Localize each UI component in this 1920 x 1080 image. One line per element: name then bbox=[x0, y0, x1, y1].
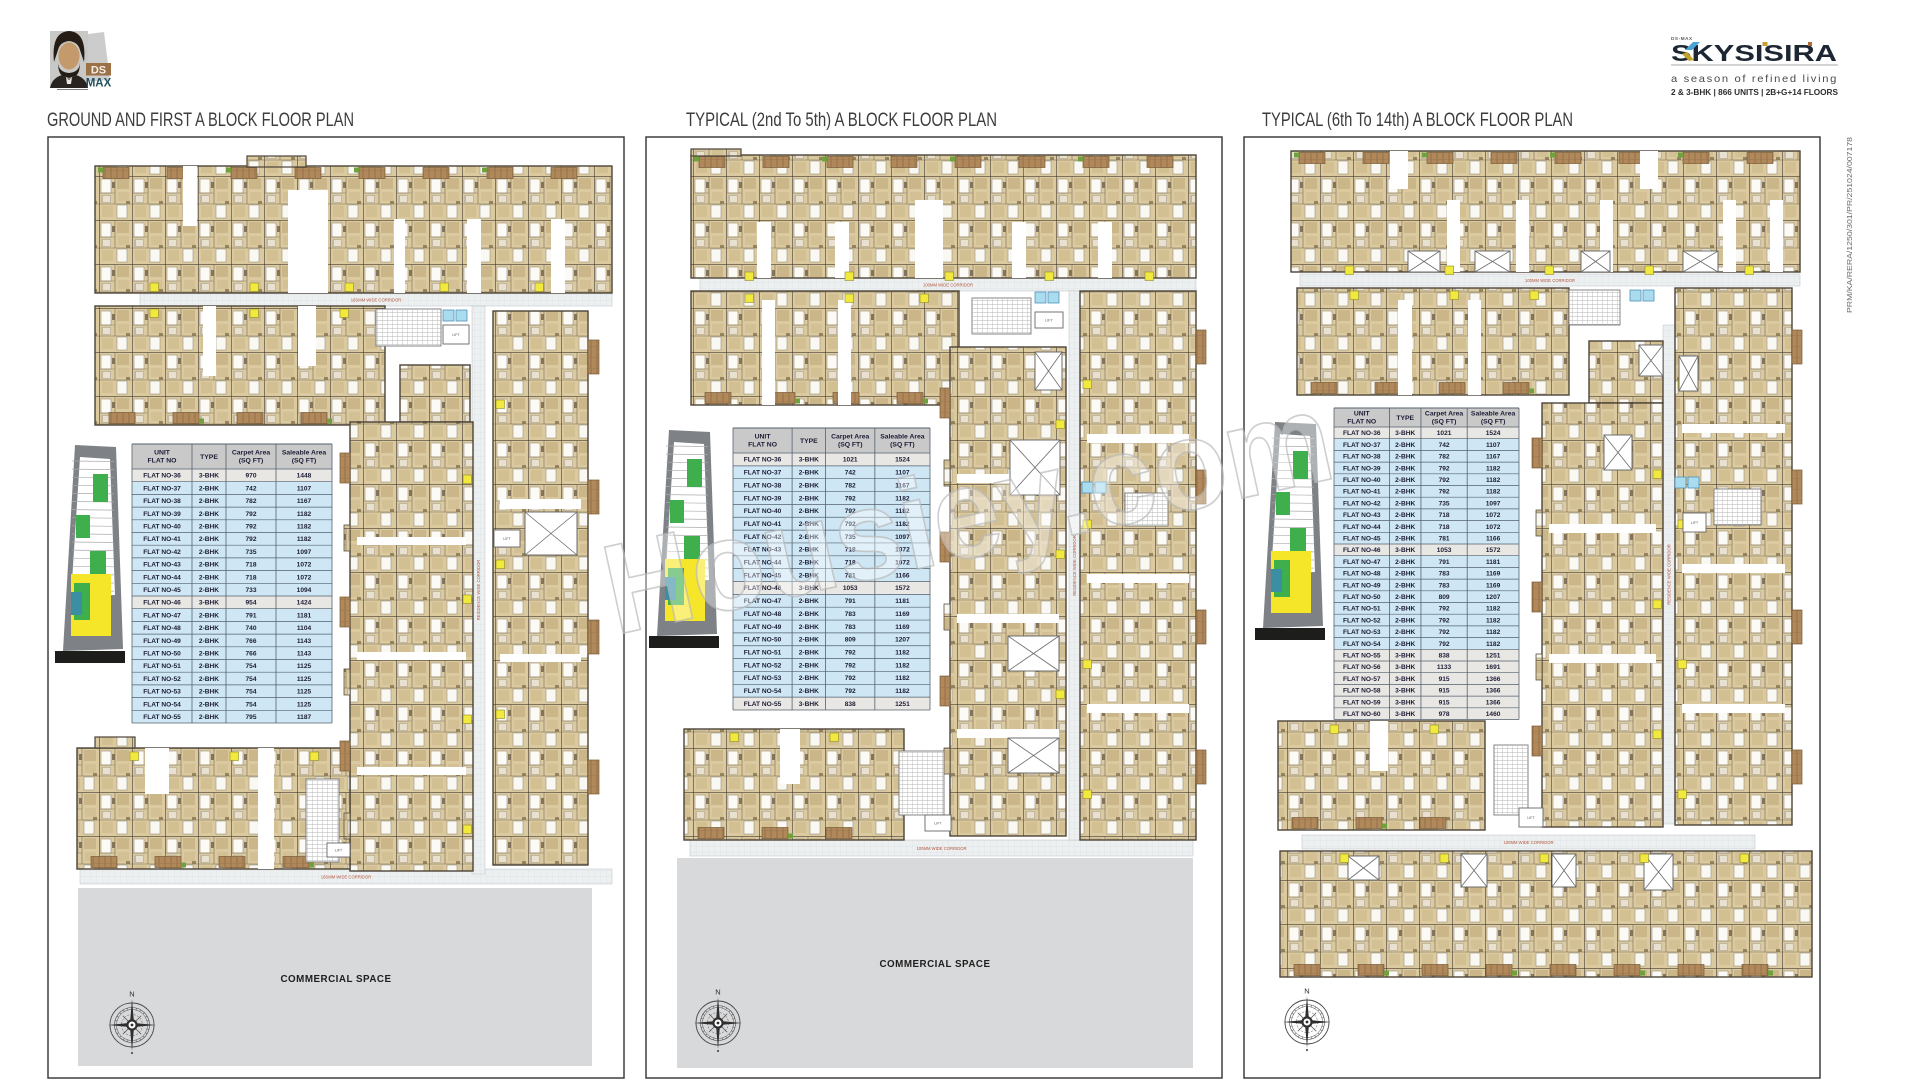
svg-text:2-BHK: 2-BHK bbox=[1395, 617, 1415, 624]
svg-text:FLAT NO-43: FLAT NO-43 bbox=[143, 562, 181, 569]
svg-text:2-BHK: 2-BHK bbox=[1395, 524, 1415, 531]
svg-text:1182: 1182 bbox=[1486, 489, 1501, 496]
svg-text:1182: 1182 bbox=[895, 675, 910, 682]
svg-text:UNIT: UNIT bbox=[1354, 411, 1371, 418]
svg-text:16SMM WIDE CORRIDOR: 16SMM WIDE CORRIDOR bbox=[351, 297, 402, 302]
svg-text:838: 838 bbox=[1439, 652, 1450, 659]
svg-text:2-BHK: 2-BHK bbox=[1395, 606, 1415, 613]
svg-text:100MM WIDE CORRIDOR: 100MM WIDE CORRIDOR bbox=[1503, 840, 1553, 845]
svg-text:GROUND AND FIRST A BLOCK FLOOR: GROUND AND FIRST A BLOCK FLOOR PLAN bbox=[47, 110, 354, 131]
svg-text:FLAT NO-50: FLAT NO-50 bbox=[1343, 594, 1381, 601]
svg-text:792: 792 bbox=[845, 649, 856, 656]
svg-text:N: N bbox=[1304, 987, 1309, 996]
svg-text:2-BHK: 2-BHK bbox=[1395, 641, 1415, 648]
svg-text:FLAT NO-42: FLAT NO-42 bbox=[1343, 500, 1381, 507]
svg-text:2-BHK: 2-BHK bbox=[1395, 442, 1415, 449]
svg-text:FLAT NO-38: FLAT NO-38 bbox=[1343, 454, 1381, 461]
svg-text:791: 791 bbox=[245, 612, 256, 619]
svg-text:915: 915 bbox=[1439, 699, 1450, 706]
svg-text:FLAT NO-50: FLAT NO-50 bbox=[744, 637, 782, 644]
svg-text:1104: 1104 bbox=[297, 625, 312, 632]
svg-text:1125: 1125 bbox=[297, 701, 312, 708]
svg-text:LIFT: LIFT bbox=[452, 333, 460, 337]
svg-text:TYPE: TYPE bbox=[1396, 415, 1414, 422]
svg-text:FLAT NO-52: FLAT NO-52 bbox=[1343, 617, 1381, 624]
svg-text:2-BHK: 2-BHK bbox=[799, 675, 819, 682]
svg-text:FLAT NO-51: FLAT NO-51 bbox=[744, 649, 782, 656]
svg-text:954: 954 bbox=[245, 600, 256, 607]
svg-text:1182: 1182 bbox=[297, 523, 312, 530]
svg-text:2-BHK: 2-BHK bbox=[1395, 454, 1415, 461]
svg-text:792: 792 bbox=[1439, 629, 1450, 636]
svg-text:2-BHK: 2-BHK bbox=[199, 625, 219, 632]
svg-text:1182: 1182 bbox=[1486, 465, 1501, 472]
svg-text:2-BHK: 2-BHK bbox=[799, 637, 819, 644]
svg-text:795: 795 bbox=[245, 714, 256, 721]
svg-text:FLAT NO-36: FLAT NO-36 bbox=[143, 473, 181, 480]
svg-text:735: 735 bbox=[1439, 500, 1450, 507]
svg-text:FLAT NO-51: FLAT NO-51 bbox=[143, 663, 181, 670]
svg-text:1207: 1207 bbox=[895, 637, 910, 644]
svg-text:Carpet Area: Carpet Area bbox=[831, 434, 869, 441]
svg-text:742: 742 bbox=[1439, 442, 1450, 449]
svg-text:742: 742 bbox=[245, 485, 256, 492]
svg-text:1182: 1182 bbox=[297, 536, 312, 543]
svg-text:792: 792 bbox=[1439, 489, 1450, 496]
svg-text:3-BHK: 3-BHK bbox=[199, 473, 219, 480]
svg-text:FLAT NO-41: FLAT NO-41 bbox=[1343, 489, 1381, 496]
svg-text:1181: 1181 bbox=[1486, 559, 1501, 566]
svg-text:1166: 1166 bbox=[1486, 535, 1501, 542]
svg-text:1072: 1072 bbox=[1486, 524, 1501, 531]
svg-text:2-BHK: 2-BHK bbox=[199, 689, 219, 696]
svg-text:Saleable Area: Saleable Area bbox=[1471, 411, 1516, 418]
svg-text:733: 733 bbox=[245, 587, 256, 594]
svg-text:838: 838 bbox=[845, 701, 856, 708]
svg-text:2-BHK: 2-BHK bbox=[199, 612, 219, 619]
svg-text:MAX: MAX bbox=[86, 78, 112, 90]
svg-text:2-BHK: 2-BHK bbox=[199, 511, 219, 518]
svg-text:1251: 1251 bbox=[1486, 652, 1501, 659]
svg-text:1169: 1169 bbox=[895, 624, 910, 631]
svg-text:(SQ FT): (SQ FT) bbox=[890, 442, 915, 449]
svg-text:783: 783 bbox=[1439, 571, 1450, 578]
svg-text:FLAT NO-49: FLAT NO-49 bbox=[1343, 582, 1381, 589]
svg-text:Saleable Area: Saleable Area bbox=[880, 434, 925, 441]
svg-text:2-BHK: 2-BHK bbox=[199, 574, 219, 581]
svg-text:FLAT NO-50: FLAT NO-50 bbox=[143, 650, 181, 657]
svg-text:FLAT NO-48: FLAT NO-48 bbox=[143, 625, 181, 632]
svg-text:1524: 1524 bbox=[1486, 430, 1501, 437]
svg-text:1182: 1182 bbox=[1486, 641, 1501, 648]
svg-text:FLAT NO-44: FLAT NO-44 bbox=[1343, 524, 1381, 531]
svg-text:2-BHK: 2-BHK bbox=[199, 536, 219, 543]
svg-text:3-BHK: 3-BHK bbox=[1395, 430, 1415, 437]
svg-text:766: 766 bbox=[245, 650, 256, 657]
svg-text:FLAT NO-38: FLAT NO-38 bbox=[143, 498, 181, 505]
svg-text:2-BHK: 2-BHK bbox=[1395, 582, 1415, 589]
svg-text:970: 970 bbox=[245, 473, 256, 480]
svg-text:2-BHK: 2-BHK bbox=[799, 624, 819, 631]
svg-text:FLAT NO-54: FLAT NO-54 bbox=[744, 688, 782, 695]
svg-text:2-BHK: 2-BHK bbox=[1395, 535, 1415, 542]
svg-text:a season of refined living: a season of refined living bbox=[1671, 73, 1838, 85]
svg-text:LIFT: LIFT bbox=[1527, 816, 1535, 820]
svg-text:792: 792 bbox=[1439, 606, 1450, 613]
svg-text:FLAT NO-42: FLAT NO-42 bbox=[143, 549, 181, 556]
svg-text:3-BHK: 3-BHK bbox=[1395, 676, 1415, 683]
svg-text:1021: 1021 bbox=[1437, 430, 1452, 437]
svg-text:DS: DS bbox=[91, 65, 106, 77]
svg-text:1182: 1182 bbox=[297, 511, 312, 518]
svg-text:1187: 1187 bbox=[297, 714, 312, 721]
svg-text:2-BHK: 2-BHK bbox=[1395, 512, 1415, 519]
svg-text:LIFT: LIFT bbox=[503, 537, 511, 541]
svg-text:1182: 1182 bbox=[1486, 617, 1501, 624]
svg-text:2-BHK: 2-BHK bbox=[199, 663, 219, 670]
svg-text:RESIDENCE WIDE CORRIDOR: RESIDENCE WIDE CORRIDOR bbox=[476, 560, 481, 621]
svg-text:1207: 1207 bbox=[1486, 594, 1501, 601]
svg-text:1053: 1053 bbox=[1437, 547, 1452, 554]
svg-text:Saleable Area: Saleable Area bbox=[282, 450, 327, 457]
svg-text:3-BHK: 3-BHK bbox=[1395, 664, 1415, 671]
svg-text:(SQ FT): (SQ FT) bbox=[1481, 419, 1506, 426]
svg-text:735: 735 bbox=[245, 549, 256, 556]
svg-text:2-BHK: 2-BHK bbox=[199, 549, 219, 556]
svg-text:1182: 1182 bbox=[895, 688, 910, 695]
svg-text:792: 792 bbox=[845, 688, 856, 695]
svg-text:2-BHK: 2-BHK bbox=[799, 688, 819, 695]
svg-text:FLAT NO-44: FLAT NO-44 bbox=[143, 574, 181, 581]
svg-text:FLAT NO-47: FLAT NO-47 bbox=[143, 612, 181, 619]
svg-text:FLAT NO-39: FLAT NO-39 bbox=[1343, 465, 1381, 472]
svg-text:UNIT: UNIT bbox=[154, 450, 171, 457]
svg-text:3-BHK: 3-BHK bbox=[1395, 652, 1415, 659]
svg-text:1169: 1169 bbox=[1486, 582, 1501, 589]
svg-text:PRM/KA/RERA/1250/301/PR/251024: PRM/KA/RERA/1250/301/PR/251024/007178 bbox=[1845, 137, 1854, 313]
svg-text:915: 915 bbox=[1439, 688, 1450, 695]
svg-text:1182: 1182 bbox=[1486, 606, 1501, 613]
svg-text:1366: 1366 bbox=[1486, 699, 1501, 706]
svg-text:FLAT NO-55: FLAT NO-55 bbox=[1343, 652, 1381, 659]
svg-text:1133: 1133 bbox=[1437, 664, 1452, 671]
svg-text:740: 740 bbox=[245, 625, 256, 632]
svg-text:COMMERCIAL SPACE: COMMERCIAL SPACE bbox=[280, 974, 391, 985]
svg-text:782: 782 bbox=[245, 498, 256, 505]
svg-text:N: N bbox=[715, 988, 720, 997]
svg-text:1107: 1107 bbox=[297, 485, 312, 492]
svg-text:2-BHK: 2-BHK bbox=[199, 714, 219, 721]
svg-text:2-BHK: 2-BHK bbox=[1395, 500, 1415, 507]
svg-text:3-BHK: 3-BHK bbox=[199, 600, 219, 607]
svg-text:LIFT: LIFT bbox=[335, 849, 343, 853]
svg-text:Carpet Area: Carpet Area bbox=[232, 450, 270, 457]
svg-text:1125: 1125 bbox=[297, 676, 312, 683]
svg-text:1366: 1366 bbox=[1486, 688, 1501, 695]
svg-text:3-BHK: 3-BHK bbox=[1395, 699, 1415, 706]
svg-text:TYPE: TYPE bbox=[800, 438, 818, 445]
svg-text:FLAT NO-46: FLAT NO-46 bbox=[143, 600, 181, 607]
svg-text:1182: 1182 bbox=[895, 662, 910, 669]
svg-text:2-BHK: 2-BHK bbox=[199, 650, 219, 657]
svg-text:3-BHK: 3-BHK bbox=[1395, 688, 1415, 695]
svg-text:718: 718 bbox=[245, 574, 256, 581]
svg-text:Carpet Area: Carpet Area bbox=[1425, 411, 1463, 418]
svg-text:FLAT NO-40: FLAT NO-40 bbox=[143, 523, 181, 530]
svg-text:766: 766 bbox=[245, 638, 256, 645]
svg-text:FLAT NO-41: FLAT NO-41 bbox=[143, 536, 181, 543]
svg-text:783: 783 bbox=[845, 624, 856, 631]
svg-text:FLAT NO-46: FLAT NO-46 bbox=[1343, 547, 1381, 554]
svg-text:UNIT: UNIT bbox=[755, 434, 772, 441]
svg-text:FLAT NO-49: FLAT NO-49 bbox=[143, 638, 181, 645]
svg-text:792: 792 bbox=[245, 511, 256, 518]
svg-text:FLAT NO-43: FLAT NO-43 bbox=[1343, 512, 1381, 519]
svg-text:TYPICAL (6th To 14th) A BLOCK: TYPICAL (6th To 14th) A BLOCK FLOOR PLAN bbox=[1262, 110, 1573, 131]
svg-text:1125: 1125 bbox=[297, 663, 312, 670]
svg-text:FLAT NO-60: FLAT NO-60 bbox=[1343, 711, 1381, 718]
svg-text:2-BHK: 2-BHK bbox=[1395, 489, 1415, 496]
svg-text:1125: 1125 bbox=[297, 689, 312, 696]
svg-text:792: 792 bbox=[845, 662, 856, 669]
svg-text:FLAT NO-37: FLAT NO-37 bbox=[1343, 442, 1381, 449]
svg-text:3-BHK: 3-BHK bbox=[799, 701, 819, 708]
svg-text:791: 791 bbox=[1439, 559, 1450, 566]
svg-text:2-BHK: 2-BHK bbox=[1395, 571, 1415, 578]
svg-text:1094: 1094 bbox=[297, 587, 312, 594]
svg-text:FLAT NO-53: FLAT NO-53 bbox=[1343, 629, 1381, 636]
svg-text:1182: 1182 bbox=[1486, 477, 1501, 484]
svg-text:1424: 1424 bbox=[297, 600, 312, 607]
svg-text:783: 783 bbox=[1439, 582, 1450, 589]
svg-text:(SQ FT): (SQ FT) bbox=[292, 458, 317, 465]
svg-text:FLAT NO-47: FLAT NO-47 bbox=[1343, 559, 1381, 566]
svg-text:754: 754 bbox=[245, 689, 256, 696]
svg-text:2-BHK: 2-BHK bbox=[199, 676, 219, 683]
svg-text:1181: 1181 bbox=[297, 612, 312, 619]
svg-text:1182: 1182 bbox=[1486, 629, 1501, 636]
svg-text:2-BHK: 2-BHK bbox=[799, 662, 819, 669]
svg-text:1460: 1460 bbox=[1486, 711, 1501, 718]
svg-text:FLAT NO-54: FLAT NO-54 bbox=[1343, 641, 1381, 648]
svg-text:792: 792 bbox=[1439, 617, 1450, 624]
svg-text:FLAT NO-45: FLAT NO-45 bbox=[1343, 535, 1381, 542]
svg-text:2 & 3-BHK | 866 UNITS | 2B+G: 2 & 3-BHK | 866 UNITS | 2B+G+14 FLOORS bbox=[1671, 87, 1838, 97]
svg-text:FLAT NO-55: FLAT NO-55 bbox=[744, 701, 782, 708]
svg-text:978: 978 bbox=[1439, 711, 1450, 718]
svg-text:2-BHK: 2-BHK bbox=[199, 638, 219, 645]
svg-text:809: 809 bbox=[1439, 594, 1450, 601]
svg-text:1169: 1169 bbox=[895, 611, 910, 618]
svg-text:2-BHK: 2-BHK bbox=[199, 485, 219, 492]
svg-text:FLAT NO-51: FLAT NO-51 bbox=[1343, 606, 1381, 613]
svg-text:1366: 1366 bbox=[1486, 676, 1501, 683]
svg-text:792: 792 bbox=[1439, 477, 1450, 484]
svg-text:FLAT NO-56: FLAT NO-56 bbox=[1343, 664, 1381, 671]
svg-text:3-BHK: 3-BHK bbox=[1395, 711, 1415, 718]
svg-text:792: 792 bbox=[1439, 641, 1450, 648]
svg-text:792: 792 bbox=[1439, 465, 1450, 472]
svg-text:FLAT NO-59: FLAT NO-59 bbox=[1343, 699, 1381, 706]
svg-text:100MM WIDE CORRIDOR: 100MM WIDE CORRIDOR bbox=[916, 846, 966, 851]
svg-text:FLAT NO-55: FLAT NO-55 bbox=[143, 714, 181, 721]
svg-text:1572: 1572 bbox=[1486, 547, 1501, 554]
svg-text:LIFT: LIFT bbox=[1691, 521, 1699, 525]
svg-text:1021: 1021 bbox=[843, 457, 858, 464]
svg-text:FLAT NO-52: FLAT NO-52 bbox=[143, 676, 181, 683]
svg-text:FLAT NO-53: FLAT NO-53 bbox=[744, 675, 782, 682]
svg-text:754: 754 bbox=[245, 676, 256, 683]
svg-text:1072: 1072 bbox=[297, 562, 312, 569]
svg-text:3-BHK: 3-BHK bbox=[799, 457, 819, 464]
svg-text:LIFT: LIFT bbox=[1045, 319, 1053, 323]
svg-text:FLAT NO-58: FLAT NO-58 bbox=[1343, 688, 1381, 695]
svg-text:781: 781 bbox=[1439, 535, 1450, 542]
svg-text:(SQ FT): (SQ FT) bbox=[838, 442, 863, 449]
svg-text:3-BHK: 3-BHK bbox=[1395, 547, 1415, 554]
svg-text:2-BHK: 2-BHK bbox=[799, 649, 819, 656]
svg-text:1072: 1072 bbox=[297, 574, 312, 581]
svg-text:FLAT NO-40: FLAT NO-40 bbox=[1343, 477, 1381, 484]
svg-text:FLAT NO-36: FLAT NO-36 bbox=[744, 457, 782, 464]
svg-text:792: 792 bbox=[845, 675, 856, 682]
svg-text:FLAT NO-54: FLAT NO-54 bbox=[143, 701, 181, 708]
svg-text:FLAT NO-45: FLAT NO-45 bbox=[143, 587, 181, 594]
svg-text:2-BHK: 2-BHK bbox=[199, 562, 219, 569]
svg-text:TYPICAL (2nd To 5th) A BLOCK F: TYPICAL (2nd To 5th) A BLOCK FLOOR PLAN bbox=[686, 110, 997, 131]
svg-text:1182: 1182 bbox=[895, 649, 910, 656]
svg-text:1097: 1097 bbox=[297, 549, 312, 556]
svg-text:1107: 1107 bbox=[1486, 442, 1501, 449]
svg-text:1251: 1251 bbox=[895, 701, 910, 708]
svg-text:2-BHK: 2-BHK bbox=[1395, 629, 1415, 636]
svg-text:FLAT NO-36: FLAT NO-36 bbox=[1343, 430, 1381, 437]
svg-text:LIFT: LIFT bbox=[934, 822, 942, 826]
svg-text:1167: 1167 bbox=[1486, 454, 1501, 461]
svg-text:2-BHK: 2-BHK bbox=[199, 587, 219, 594]
svg-text:TYPE: TYPE bbox=[200, 454, 218, 461]
svg-text:718: 718 bbox=[1439, 524, 1450, 531]
svg-text:2-BHK: 2-BHK bbox=[1395, 477, 1415, 484]
svg-text:2-BHK: 2-BHK bbox=[1395, 465, 1415, 472]
svg-text:754: 754 bbox=[245, 663, 256, 670]
svg-text:FLAT NO: FLAT NO bbox=[148, 458, 177, 465]
svg-text:2-BHK: 2-BHK bbox=[199, 701, 219, 708]
svg-text:718: 718 bbox=[245, 562, 256, 569]
svg-text:915: 915 bbox=[1439, 676, 1450, 683]
svg-text:1691: 1691 bbox=[1486, 664, 1501, 671]
svg-text:N: N bbox=[129, 990, 134, 999]
svg-text:2-BHK: 2-BHK bbox=[199, 523, 219, 530]
svg-text:792: 792 bbox=[245, 523, 256, 530]
svg-text:(SQ FT): (SQ FT) bbox=[239, 458, 264, 465]
svg-text:1169: 1169 bbox=[1486, 571, 1501, 578]
svg-text:FLAT NO-39: FLAT NO-39 bbox=[143, 511, 181, 518]
svg-text:2-BHK: 2-BHK bbox=[199, 498, 219, 505]
svg-text:2-BHK: 2-BHK bbox=[1395, 559, 1415, 566]
svg-text:FLAT NO-37: FLAT NO-37 bbox=[744, 470, 782, 477]
svg-text:(SQ FT): (SQ FT) bbox=[1432, 419, 1457, 426]
svg-text:1167: 1167 bbox=[297, 498, 312, 505]
svg-text:100MM WIDE CORRIDOR: 100MM WIDE CORRIDOR bbox=[1525, 278, 1575, 283]
svg-text:FLAT NO: FLAT NO bbox=[748, 442, 777, 449]
svg-text:FLAT NO-37: FLAT NO-37 bbox=[143, 485, 181, 492]
svg-text:FLAT NO-52: FLAT NO-52 bbox=[744, 662, 782, 669]
svg-text:16SMM WIDE CORRIDOR: 16SMM WIDE CORRIDOR bbox=[321, 874, 372, 879]
svg-text:FLAT NO: FLAT NO bbox=[1347, 419, 1376, 426]
svg-text:1072: 1072 bbox=[1486, 512, 1501, 519]
svg-text:1097: 1097 bbox=[1486, 500, 1501, 507]
svg-text:1143: 1143 bbox=[297, 650, 312, 657]
svg-text:1143: 1143 bbox=[297, 638, 312, 645]
svg-text:792: 792 bbox=[245, 536, 256, 543]
svg-text:718: 718 bbox=[1439, 512, 1450, 519]
svg-text:FLAT NO-48: FLAT NO-48 bbox=[1343, 571, 1381, 578]
svg-text:2-BHK: 2-BHK bbox=[1395, 594, 1415, 601]
svg-text:809: 809 bbox=[845, 637, 856, 644]
svg-text:754: 754 bbox=[245, 701, 256, 708]
svg-text:100MM WIDE CORRIDOR: 100MM WIDE CORRIDOR bbox=[923, 282, 973, 287]
svg-text:1448: 1448 bbox=[297, 473, 312, 480]
svg-text:782: 782 bbox=[1439, 454, 1450, 461]
svg-text:COMMERCIAL SPACE: COMMERCIAL SPACE bbox=[879, 959, 990, 970]
svg-text:FLAT NO-57: FLAT NO-57 bbox=[1343, 676, 1381, 683]
svg-text:RESIDENCE WIDE CORRIDOR: RESIDENCE WIDE CORRIDOR bbox=[1667, 544, 1672, 605]
svg-text:FLAT NO-53: FLAT NO-53 bbox=[143, 689, 181, 696]
